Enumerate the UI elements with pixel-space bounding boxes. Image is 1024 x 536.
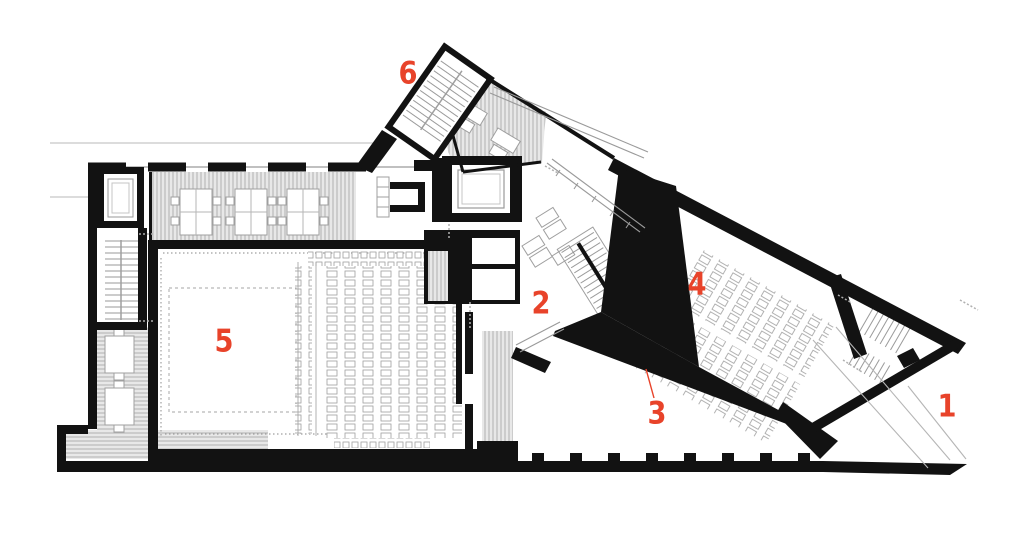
hall-5-contents xyxy=(161,246,462,448)
site-wall-right xyxy=(823,461,967,475)
room-marker-1: 1 xyxy=(938,392,957,423)
room-marker-2: 2 xyxy=(532,289,551,320)
corridor-table xyxy=(105,329,134,380)
stair-core-left xyxy=(105,238,138,322)
service-strip-floor xyxy=(482,331,513,441)
hall-platform-column xyxy=(295,266,312,434)
room-marker-3: 3 xyxy=(648,399,667,430)
floor-plan-figure: 1 2 3 4 5 6 xyxy=(0,0,1024,536)
room-marker-4: 4 xyxy=(688,270,707,301)
corridor-table xyxy=(105,381,134,432)
bookshelf xyxy=(377,177,389,217)
room-marker-5: 5 xyxy=(215,327,234,358)
wing-bottom-tip xyxy=(776,402,838,459)
hall-seat-rows-bottom xyxy=(334,438,430,448)
floor-plan-drawing xyxy=(0,0,1024,536)
site-wall-teeth xyxy=(531,453,823,461)
room-marker-6: 6 xyxy=(399,59,418,90)
wing-door-gap xyxy=(835,378,854,395)
